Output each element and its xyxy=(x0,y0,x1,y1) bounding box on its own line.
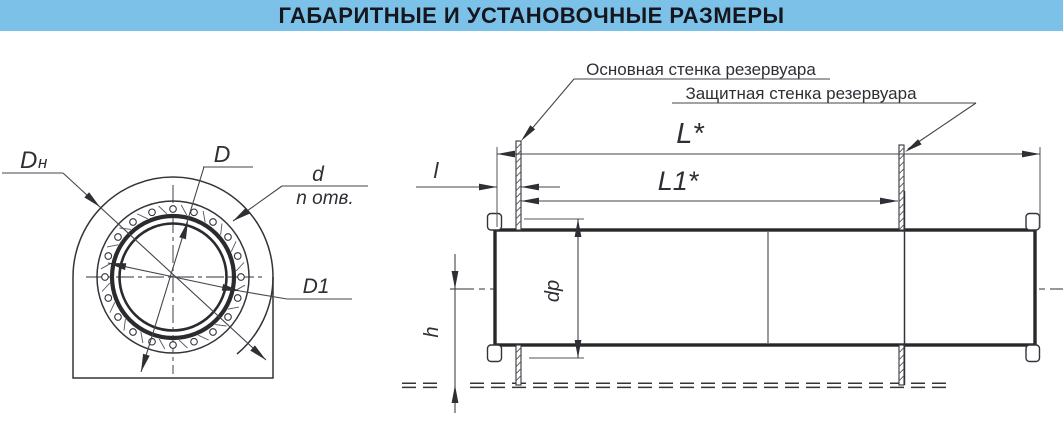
dim-wall-to-wall-length: L1* xyxy=(521,166,898,204)
hatch-tick xyxy=(221,224,222,235)
bolt-hole xyxy=(238,274,245,281)
bolt-hole xyxy=(225,314,232,321)
bolt-hole xyxy=(234,295,241,302)
label-protective-wall: Защитная стенка резервуара xyxy=(685,84,917,103)
hatch-tick xyxy=(231,241,236,251)
bolt-hole xyxy=(170,342,177,349)
arrowhead xyxy=(521,125,535,141)
label-protrusion: l xyxy=(434,158,440,183)
bolt-hole xyxy=(115,234,122,241)
wall-plate xyxy=(899,345,904,385)
dim-outer-diameter: D н xyxy=(2,147,266,360)
label-total-length: L* xyxy=(676,118,705,150)
pipe-body xyxy=(495,230,1035,345)
label-outer-diameter-sub: н xyxy=(38,153,48,172)
end-ring xyxy=(488,345,502,362)
dim-height: h xyxy=(421,254,458,413)
side-view: Основная стенка резервуара Защитная стен… xyxy=(402,60,1063,413)
hatch-tick xyxy=(159,339,165,349)
arrowhead xyxy=(222,284,240,291)
label-pipe-diameter: dp xyxy=(542,280,564,302)
dim-protrusion: l xyxy=(416,158,560,190)
end-ring xyxy=(1026,345,1040,362)
bolt-hole xyxy=(210,329,217,336)
hatch-tick xyxy=(124,319,125,330)
bolt-hole xyxy=(115,314,122,321)
hatch-tick xyxy=(159,206,167,214)
arrowhead xyxy=(452,271,459,289)
hatch-tick xyxy=(215,325,226,326)
wall-plate xyxy=(516,345,521,385)
bolt-hole xyxy=(130,219,137,226)
bolt-hole xyxy=(130,329,137,336)
hatch-tick xyxy=(198,335,208,340)
dome-arc-corner xyxy=(237,277,273,354)
arrowhead xyxy=(880,198,898,205)
dim-bolt-holes: d n отв. xyxy=(233,163,368,221)
arrowhead xyxy=(521,184,539,191)
arrowhead xyxy=(452,385,459,403)
arrowhead xyxy=(905,139,922,152)
page: ГАБАРИТНЫЕ И УСТАНОВОЧНЫЕ РАЗМЕРЫ D н xyxy=(0,0,1063,421)
hatch-tick xyxy=(181,205,187,215)
hatch-tick xyxy=(203,211,205,222)
arrowhead xyxy=(141,354,150,372)
bolt-hole xyxy=(210,219,217,226)
end-ring xyxy=(1026,214,1040,231)
title-bar: ГАБАРИТНЫЕ И УСТАНОВОЧНЫЕ РАЗМЕРЫ xyxy=(0,0,1063,31)
label-hole-count: n отв. xyxy=(296,188,353,209)
hatch-tick xyxy=(141,332,143,343)
bolt-hole xyxy=(170,206,177,213)
bolt-hole xyxy=(149,209,156,216)
bolt-hole xyxy=(102,274,109,281)
end-ring xyxy=(488,214,502,231)
foundation-line xyxy=(402,383,950,387)
arrowhead xyxy=(1022,151,1040,158)
bolt-hole xyxy=(234,253,241,260)
dim-total-length: L* xyxy=(497,118,1040,228)
hatch-tick xyxy=(236,263,244,271)
bolt-hole xyxy=(191,338,198,345)
label-outer-diameter: D xyxy=(20,147,37,174)
arrowhead xyxy=(521,198,539,205)
label-height: h xyxy=(421,326,443,337)
hatch-tick xyxy=(228,307,239,309)
bolt-hole xyxy=(105,253,112,260)
hatch-tick xyxy=(110,302,115,312)
arrowhead xyxy=(479,184,497,191)
label-hole-diameter: d xyxy=(312,163,325,186)
front-view: D н D d n отв. xyxy=(2,141,368,378)
hatch-tick xyxy=(137,214,147,219)
bolt-hole xyxy=(225,234,232,241)
label-bolt-circle-diameter: D1 xyxy=(303,275,330,298)
arrowhead xyxy=(497,151,515,158)
label-flange-diameter: D xyxy=(214,141,231,167)
label-wall-to-wall-length: L1* xyxy=(658,166,700,196)
bolt-hole xyxy=(191,209,198,216)
bolt-hole xyxy=(105,295,112,302)
arrowhead xyxy=(575,340,582,358)
hatch-tick xyxy=(102,283,110,291)
page-title: ГАБАРИТНЫЕ И УСТАНОВОЧНЫЕ РАЗМЕРЫ xyxy=(278,3,784,29)
hatch-tick xyxy=(120,228,131,229)
arrowhead xyxy=(575,219,582,237)
hatch-tick xyxy=(179,340,187,348)
hatch-tick xyxy=(107,245,118,247)
label-main-wall: Основная стенка резервуара xyxy=(586,60,816,79)
technical-drawing: D н D d n отв. xyxy=(0,31,1063,421)
callout-protective-wall: Защитная стенка резервуара xyxy=(672,84,976,152)
hatch-tick xyxy=(101,263,111,269)
